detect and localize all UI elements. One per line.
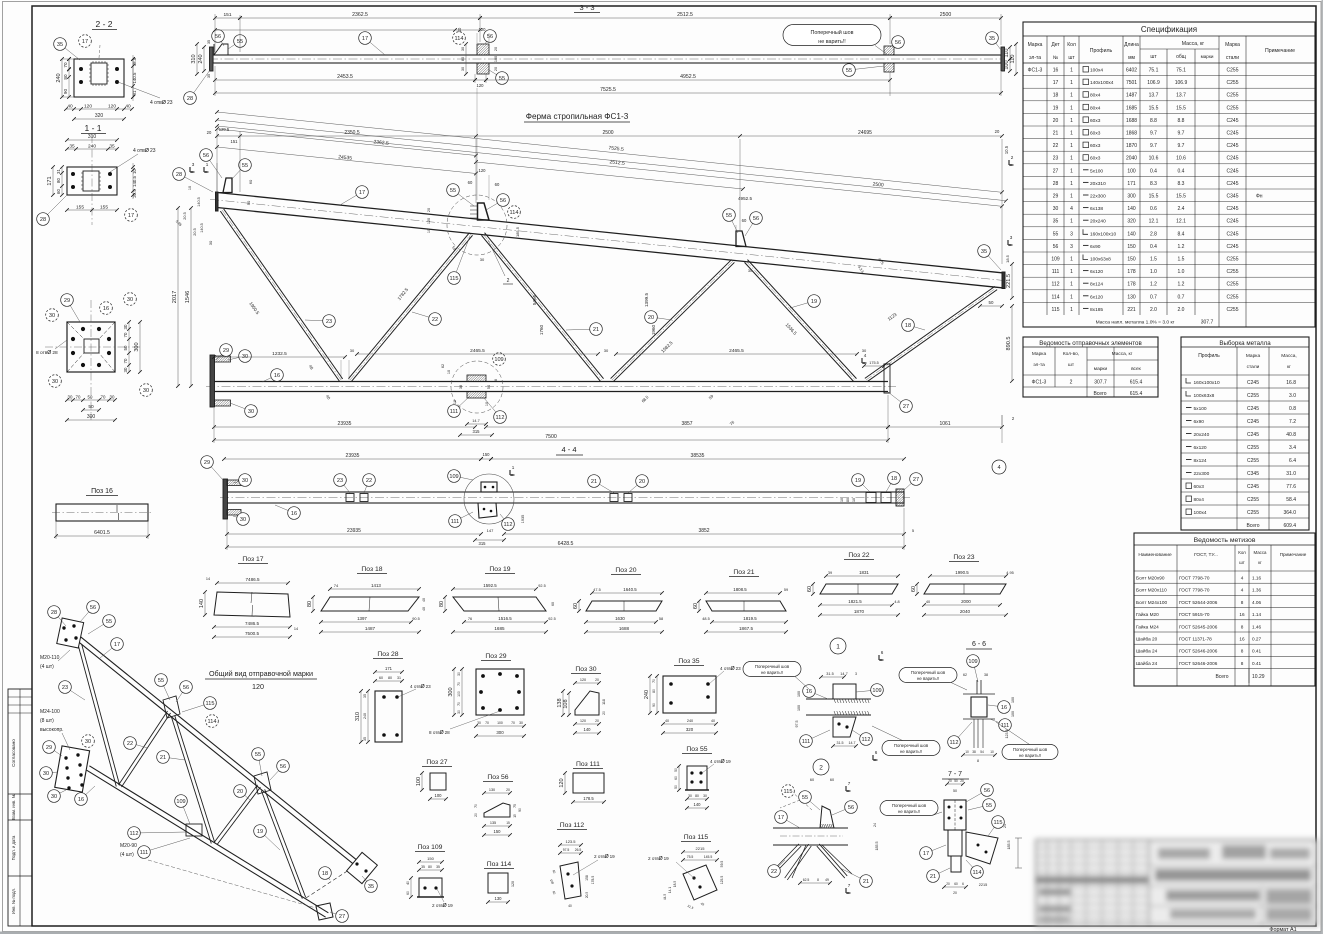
svg-text:С255: С255: [1247, 510, 1259, 516]
svg-text:16: 16: [78, 797, 84, 803]
svg-text:4: 4: [864, 353, 867, 358]
svg-text:22: 22: [1053, 143, 1059, 149]
svg-text:С255: С255: [1247, 458, 1259, 464]
svg-text:(4 шт): (4 шт): [120, 852, 134, 858]
svg-text:1: 1: [1070, 294, 1073, 300]
svg-text:40: 40: [67, 104, 73, 110]
svg-text:112: 112: [130, 831, 139, 837]
svg-text:марки: марки: [1201, 54, 1214, 59]
svg-text:3: 3: [855, 672, 857, 676]
svg-text:35: 35: [207, 74, 211, 78]
svg-text:307.7: 307.7: [1094, 380, 1107, 386]
svg-text:2: 2: [1011, 155, 1014, 160]
svg-text:20: 20: [595, 678, 599, 682]
svg-text:Ферма стропильная ФС1-3: Ферма стропильная ФС1-3: [526, 112, 629, 121]
svg-text:1: 1: [1070, 131, 1073, 137]
svg-text:120: 120: [580, 678, 586, 682]
svg-text:615.4: 615.4: [1130, 380, 1143, 386]
svg-text:114: 114: [455, 36, 464, 42]
svg-text:145.5: 145.5: [704, 855, 713, 859]
svg-text:20: 20: [506, 788, 510, 792]
svg-text:40: 40: [422, 598, 426, 602]
svg-text:54: 54: [487, 385, 491, 389]
svg-text:175.5: 175.5: [869, 361, 879, 365]
svg-text:35: 35: [57, 42, 63, 48]
svg-text:4.8: 4.8: [894, 600, 899, 604]
svg-text:8х124: 8х124: [1194, 458, 1207, 464]
svg-text:Ø: Ø: [443, 903, 447, 909]
svg-text:70: 70: [457, 682, 461, 686]
svg-text:35: 35: [207, 40, 211, 44]
svg-text:38535: 38535: [691, 453, 705, 459]
svg-text:30: 30: [748, 269, 752, 273]
svg-text:С255: С255: [1227, 257, 1239, 263]
svg-text:112: 112: [950, 740, 959, 746]
svg-text:Гайка М24: Гайка М24: [1136, 623, 1159, 629]
svg-text:50: 50: [674, 785, 678, 789]
svg-text:240: 240: [363, 713, 367, 719]
svg-text:5х100: 5х100: [1090, 168, 1103, 174]
svg-text:70: 70: [123, 358, 128, 363]
svg-text:С255: С255: [1247, 393, 1259, 399]
svg-text:300: 300: [134, 342, 140, 351]
svg-text:Наименование: Наименование: [1138, 552, 1172, 558]
svg-text:0.41: 0.41: [1252, 649, 1262, 654]
svg-text:21: 21: [160, 755, 166, 761]
svg-text:17: 17: [362, 36, 368, 42]
svg-text:10: 10: [447, 370, 451, 374]
svg-text:23935: 23935: [346, 453, 360, 459]
svg-text:2.8: 2.8: [1150, 231, 1157, 237]
svg-text:10: 10: [990, 750, 994, 754]
svg-text:1487: 1487: [1126, 93, 1137, 99]
svg-text:80: 80: [695, 794, 699, 798]
svg-text:6.4: 6.4: [1289, 458, 1296, 464]
svg-text:18: 18: [891, 476, 897, 482]
svg-text:9.7: 9.7: [1150, 143, 1157, 149]
svg-text:Поз 22: Поз 22: [848, 552, 869, 559]
svg-text:320: 320: [686, 727, 694, 732]
svg-text:Ведомость отправочных элементо: Ведомость отправочных элементов: [1039, 340, 1142, 347]
svg-text:Поз 30: Поз 30: [575, 666, 596, 673]
svg-text:8х124: 8х124: [1090, 282, 1103, 288]
svg-text:80: 80: [428, 865, 432, 869]
svg-text:0.7: 0.7: [1178, 294, 1185, 300]
svg-text:ФС1-3: ФС1-3: [1028, 68, 1043, 74]
svg-text:140.5: 140.5: [132, 72, 137, 84]
svg-text:8.3: 8.3: [1178, 181, 1185, 187]
svg-text:1: 1: [1070, 307, 1073, 313]
svg-text:300: 300: [448, 687, 454, 696]
svg-text:1: 1: [1070, 80, 1073, 86]
svg-text:38: 38: [984, 673, 988, 677]
svg-text:50: 50: [123, 345, 128, 350]
svg-text:С245: С245: [1227, 168, 1239, 174]
svg-text:109: 109: [449, 474, 458, 480]
svg-text:не варить!!: не варить!!: [917, 676, 939, 681]
svg-text:47.5: 47.5: [593, 588, 600, 592]
svg-text:19: 19: [664, 856, 670, 861]
svg-text:Поз 35: Поз 35: [678, 658, 699, 665]
svg-text:9.7: 9.7: [1178, 143, 1185, 149]
svg-text:1: 1: [1070, 93, 1073, 99]
svg-text:111: 111: [802, 739, 811, 745]
svg-text:10: 10: [485, 402, 489, 406]
svg-text:150: 150: [483, 452, 491, 457]
svg-text:90: 90: [518, 808, 522, 812]
svg-text:35: 35: [368, 884, 374, 890]
svg-text:1: 1: [1070, 219, 1073, 225]
svg-text:6402: 6402: [1126, 68, 1137, 74]
svg-text:20: 20: [474, 813, 478, 817]
svg-text:Взам. инв. №: Взам. инв. №: [11, 794, 16, 820]
svg-text:8.8: 8.8: [1150, 118, 1157, 124]
svg-text:109: 109: [1051, 257, 1060, 263]
svg-text:Ø: Ø: [47, 350, 51, 356]
svg-text:28: 28: [445, 730, 451, 735]
svg-text:151: 151: [223, 12, 231, 18]
svg-text:С255: С255: [1227, 80, 1239, 86]
svg-text:28: 28: [176, 172, 182, 178]
svg-text:8 отв: 8 отв: [36, 350, 48, 356]
svg-text:1.14: 1.14: [1252, 612, 1262, 617]
svg-text:23: 23: [426, 684, 432, 689]
svg-text:115: 115: [450, 276, 459, 282]
svg-text:31: 31: [56, 169, 61, 174]
svg-text:2350.5: 2350.5: [344, 130, 360, 136]
svg-text:140.5: 140.5: [197, 197, 201, 207]
svg-text:24: 24: [873, 823, 877, 827]
svg-text:4: 4: [1241, 588, 1244, 593]
svg-text:111: 111: [140, 850, 149, 856]
svg-text:5466: 5466: [532, 294, 537, 305]
svg-text:40: 40: [422, 607, 426, 611]
svg-text:140.5: 140.5: [200, 223, 204, 233]
svg-text:19: 19: [610, 854, 616, 859]
svg-text:100: 100: [494, 56, 498, 62]
svg-text:10: 10: [852, 498, 856, 502]
svg-text:2500: 2500: [872, 181, 884, 188]
svg-text:3852: 3852: [698, 528, 709, 534]
svg-text:60х3: 60х3: [1090, 143, 1101, 149]
svg-text:М24-100: М24-100: [40, 709, 60, 715]
svg-text:80: 80: [652, 689, 656, 693]
svg-text:1.0: 1.0: [1178, 269, 1185, 275]
svg-text:7: 7: [848, 883, 851, 888]
svg-text:100х63х8: 100х63х8: [1090, 257, 1111, 263]
svg-text:Поз 29: Поз 29: [485, 653, 506, 660]
svg-text:2017: 2017: [172, 291, 178, 303]
svg-text:58.4: 58.4: [1286, 497, 1296, 503]
svg-text:185.5: 185.5: [1007, 841, 1011, 850]
svg-text:Поз 28: Поз 28: [377, 651, 398, 658]
svg-text:1868: 1868: [1126, 131, 1137, 137]
svg-text:2465.5: 2465.5: [470, 348, 485, 354]
svg-text:Марка: Марка: [1032, 351, 1047, 357]
svg-text:8.4: 8.4: [1178, 231, 1185, 237]
svg-text:шт: шт: [1150, 54, 1157, 60]
svg-text:100х63х8: 100х63х8: [1194, 393, 1215, 399]
svg-text:12.1: 12.1: [1149, 219, 1159, 225]
svg-text:8: 8: [1241, 600, 1244, 605]
svg-text:30: 30: [85, 739, 91, 745]
svg-text:6х90: 6х90: [1194, 419, 1205, 425]
svg-text:55: 55: [242, 163, 248, 169]
svg-text:С245: С245: [1227, 131, 1239, 137]
svg-text:С245: С245: [1227, 244, 1239, 250]
svg-text:1: 1: [1070, 257, 1073, 263]
svg-text:55: 55: [106, 619, 112, 625]
svg-text:30: 30: [143, 388, 149, 394]
svg-text:10: 10: [132, 169, 137, 174]
svg-text:112: 112: [1052, 282, 1060, 288]
svg-text:40: 40: [125, 104, 131, 110]
svg-text:19: 19: [448, 903, 454, 908]
svg-text:21: 21: [591, 479, 597, 485]
svg-text:6х120: 6х120: [1090, 269, 1103, 275]
svg-text:Поз 18: Поз 18: [361, 566, 382, 573]
svg-text:10.5: 10.5: [1004, 145, 1009, 154]
svg-text:35: 35: [363, 737, 367, 741]
svg-text:0.41: 0.41: [1252, 661, 1262, 666]
svg-text:Примечание: Примечание: [1280, 552, 1307, 557]
svg-text:114: 114: [208, 719, 217, 725]
svg-text:Длина: Длина: [1124, 42, 1139, 48]
svg-text:1.2: 1.2: [1150, 282, 1157, 288]
svg-text:15.5: 15.5: [1149, 194, 1159, 200]
svg-text:1.2: 1.2: [1178, 282, 1185, 288]
svg-text:10: 10: [965, 750, 969, 754]
svg-text:55: 55: [255, 752, 261, 758]
svg-text:16: 16: [291, 511, 297, 517]
svg-text:60х3: 60х3: [1090, 118, 1101, 124]
svg-text:6х90: 6х90: [1090, 244, 1101, 250]
svg-text:эл-та: эл-та: [1029, 55, 1041, 61]
svg-text:30: 30: [127, 297, 133, 303]
svg-text:23935: 23935: [347, 528, 361, 534]
svg-text:18: 18: [1053, 93, 1059, 99]
svg-text:106.9: 106.9: [1175, 80, 1188, 86]
svg-text:90: 90: [652, 703, 656, 707]
svg-text:59: 59: [784, 588, 788, 592]
svg-text:1: 1: [1070, 168, 1073, 174]
svg-text:123.5: 123.5: [565, 839, 576, 844]
svg-text:2.0: 2.0: [1178, 307, 1185, 313]
svg-text:20.5: 20.5: [193, 228, 197, 235]
svg-text:Ø: Ø: [731, 666, 735, 672]
svg-text:Поз 21: Поз 21: [733, 569, 754, 576]
svg-text:80: 80: [388, 676, 392, 680]
svg-text:30: 30: [461, 47, 465, 51]
svg-text:100: 100: [457, 691, 461, 697]
svg-text:30: 30: [43, 771, 49, 777]
svg-text:92.5: 92.5: [538, 584, 545, 588]
svg-text:6401.5: 6401.5: [94, 530, 110, 536]
svg-text:40: 40: [926, 600, 930, 604]
svg-text:120: 120: [108, 104, 116, 110]
svg-text:не варить!!: не варить!!: [761, 670, 783, 675]
svg-text:1.5: 1.5: [1150, 257, 1157, 263]
svg-text:1831: 1831: [859, 570, 869, 575]
svg-text:С255: С255: [1227, 93, 1239, 99]
svg-text:114: 114: [1052, 294, 1060, 300]
svg-text:7525.5: 7525.5: [600, 87, 616, 93]
svg-text:С245: С245: [1247, 484, 1259, 490]
svg-text:20: 20: [207, 130, 212, 135]
svg-text:2465.5: 2465.5: [729, 348, 744, 354]
svg-text:19: 19: [257, 829, 263, 835]
svg-text:178.5: 178.5: [591, 876, 595, 885]
svg-text:Поз 55: Поз 55: [686, 746, 707, 753]
svg-text:28: 28: [1053, 181, 1059, 187]
svg-text:10: 10: [427, 229, 431, 233]
svg-text:1: 1: [1070, 269, 1073, 275]
svg-text:55: 55: [158, 678, 164, 684]
svg-text:2040: 2040: [960, 609, 971, 614]
svg-text:20: 20: [948, 779, 952, 783]
svg-text:1: 1: [836, 643, 840, 650]
svg-text:ГОСТ 52646-2006: ГОСТ 52646-2006: [1179, 649, 1218, 654]
svg-text:30: 30: [350, 348, 355, 353]
svg-text:56: 56: [487, 34, 493, 40]
svg-text:60: 60: [954, 882, 958, 886]
svg-text:97.5: 97.5: [795, 721, 799, 728]
svg-text:21: 21: [1053, 131, 1059, 137]
svg-text:23: 23: [1053, 156, 1059, 162]
svg-text:16: 16: [1001, 705, 1007, 711]
svg-text:120: 120: [479, 27, 487, 32]
svg-text:1232.5: 1232.5: [272, 351, 287, 357]
svg-text:3: 3: [1010, 235, 1013, 240]
svg-text:21: 21: [863, 879, 869, 885]
svg-text:60: 60: [495, 182, 500, 187]
svg-text:115: 115: [1052, 307, 1060, 313]
svg-text:Всего: Всего: [1215, 674, 1228, 680]
svg-text:Поз 109: Поз 109: [418, 844, 443, 851]
svg-text:60х3: 60х3: [1090, 156, 1101, 162]
svg-text:2: 2: [819, 764, 823, 771]
svg-text:Поз 115: Поз 115: [684, 834, 709, 841]
svg-text:Фн: Фн: [1256, 194, 1263, 200]
svg-text:17: 17: [128, 213, 134, 219]
svg-text:Поз 112: Поз 112: [560, 822, 585, 829]
svg-text:160х100х10: 160х100х10: [1090, 231, 1116, 237]
svg-text:17: 17: [114, 642, 120, 648]
svg-text:160х100х10: 160х100х10: [1194, 380, 1220, 386]
svg-text:16: 16: [103, 306, 109, 312]
svg-text:12.1: 12.1: [1176, 219, 1186, 225]
svg-text:30: 30: [604, 348, 609, 353]
svg-text:150: 150: [1127, 244, 1136, 250]
svg-text:1760: 1760: [539, 324, 544, 335]
svg-text:8: 8: [817, 878, 819, 882]
svg-text:20: 20: [953, 891, 957, 895]
svg-text:2 отв: 2 отв: [648, 856, 659, 861]
svg-text:140: 140: [1127, 206, 1136, 212]
svg-text:4: 4: [1241, 576, 1244, 581]
svg-text:55: 55: [450, 188, 456, 194]
svg-text:364.0: 364.0: [1283, 510, 1296, 516]
svg-text:20: 20: [960, 779, 964, 783]
svg-text:60: 60: [468, 180, 473, 185]
svg-text:80: 80: [461, 57, 465, 61]
svg-text:Примечание: Примечание: [1265, 48, 1295, 54]
svg-text:ГОСТ 52646-2006: ГОСТ 52646-2006: [1179, 661, 1218, 666]
svg-text:ГОСТ 5915-70: ГОСТ 5915-70: [1179, 612, 1210, 617]
svg-text:14.7: 14.7: [472, 419, 479, 423]
svg-text:Болт М20х90: Болт М20х90: [1136, 576, 1165, 581]
svg-text:50: 50: [953, 789, 957, 793]
svg-text:112: 112: [496, 415, 505, 421]
svg-text:100: 100: [416, 777, 422, 786]
svg-text:60: 60: [248, 179, 253, 184]
svg-text:75: 75: [513, 804, 517, 808]
svg-text:шт: шт: [1068, 55, 1075, 61]
svg-text:890.5: 890.5: [1006, 337, 1012, 351]
svg-text:615.4: 615.4: [1130, 391, 1143, 397]
svg-text:Ø: Ø: [659, 856, 663, 862]
svg-text:Поз 17: Поз 17: [242, 556, 263, 563]
svg-text:7486.5: 7486.5: [245, 621, 259, 626]
svg-text:1: 1: [1070, 282, 1073, 288]
svg-text:0.4: 0.4: [1150, 168, 1157, 174]
svg-text:8 отв: 8 отв: [429, 730, 440, 735]
svg-text:С255: С255: [1247, 445, 1259, 451]
svg-text:40: 40: [568, 904, 572, 908]
svg-text:4 отв: 4 отв: [710, 759, 721, 764]
svg-text:1487: 1487: [365, 626, 376, 631]
svg-text:20.5: 20.5: [183, 212, 187, 219]
svg-text:18: 18: [905, 323, 911, 329]
svg-text:115: 115: [206, 701, 215, 707]
svg-text:2215: 2215: [979, 883, 987, 887]
svg-text:171: 171: [47, 176, 53, 185]
svg-text:6: 6: [962, 882, 964, 886]
svg-text:6: 6: [875, 750, 878, 755]
svg-text:3: 3: [1070, 231, 1073, 237]
svg-text:всех: всех: [1131, 367, 1141, 372]
svg-text:150: 150: [494, 829, 502, 834]
svg-text:56: 56: [183, 685, 189, 691]
svg-text:140: 140: [694, 802, 702, 807]
svg-text:27: 27: [1053, 168, 1059, 174]
svg-text:2500: 2500: [940, 12, 952, 18]
svg-text:2.0: 2.0: [1150, 307, 1157, 313]
svg-text:ГОСТ, ТУ...: ГОСТ, ТУ...: [1194, 552, 1218, 558]
svg-text:60: 60: [551, 602, 555, 606]
svg-text:22х300: 22х300: [1194, 471, 1210, 477]
svg-text:35: 35: [109, 144, 115, 150]
svg-text:60: 60: [742, 218, 747, 223]
svg-text:13.7: 13.7: [1149, 93, 1159, 99]
svg-text:6х120: 6х120: [1090, 294, 1103, 300]
svg-text:1819.5: 1819.5: [743, 616, 757, 621]
svg-text:Дет: Дет: [1051, 42, 1060, 48]
svg-text:Масса, кг: Масса, кг: [1182, 41, 1204, 47]
svg-text:118: 118: [602, 699, 606, 705]
svg-text:4 отв: 4 отв: [410, 684, 421, 689]
svg-text:7486.5: 7486.5: [245, 577, 259, 582]
svg-text:21: 21: [593, 327, 599, 333]
svg-text:не варить!!: не варить!!: [1019, 753, 1041, 758]
svg-text:62.5: 62.5: [803, 878, 810, 882]
svg-text:147: 147: [487, 528, 494, 533]
svg-text:С245: С245: [1227, 181, 1239, 187]
svg-text:1: 1: [1070, 118, 1073, 124]
svg-text:1.46: 1.46: [1252, 624, 1262, 629]
svg-text:56: 56: [280, 764, 286, 770]
svg-text:55: 55: [1053, 231, 1059, 237]
